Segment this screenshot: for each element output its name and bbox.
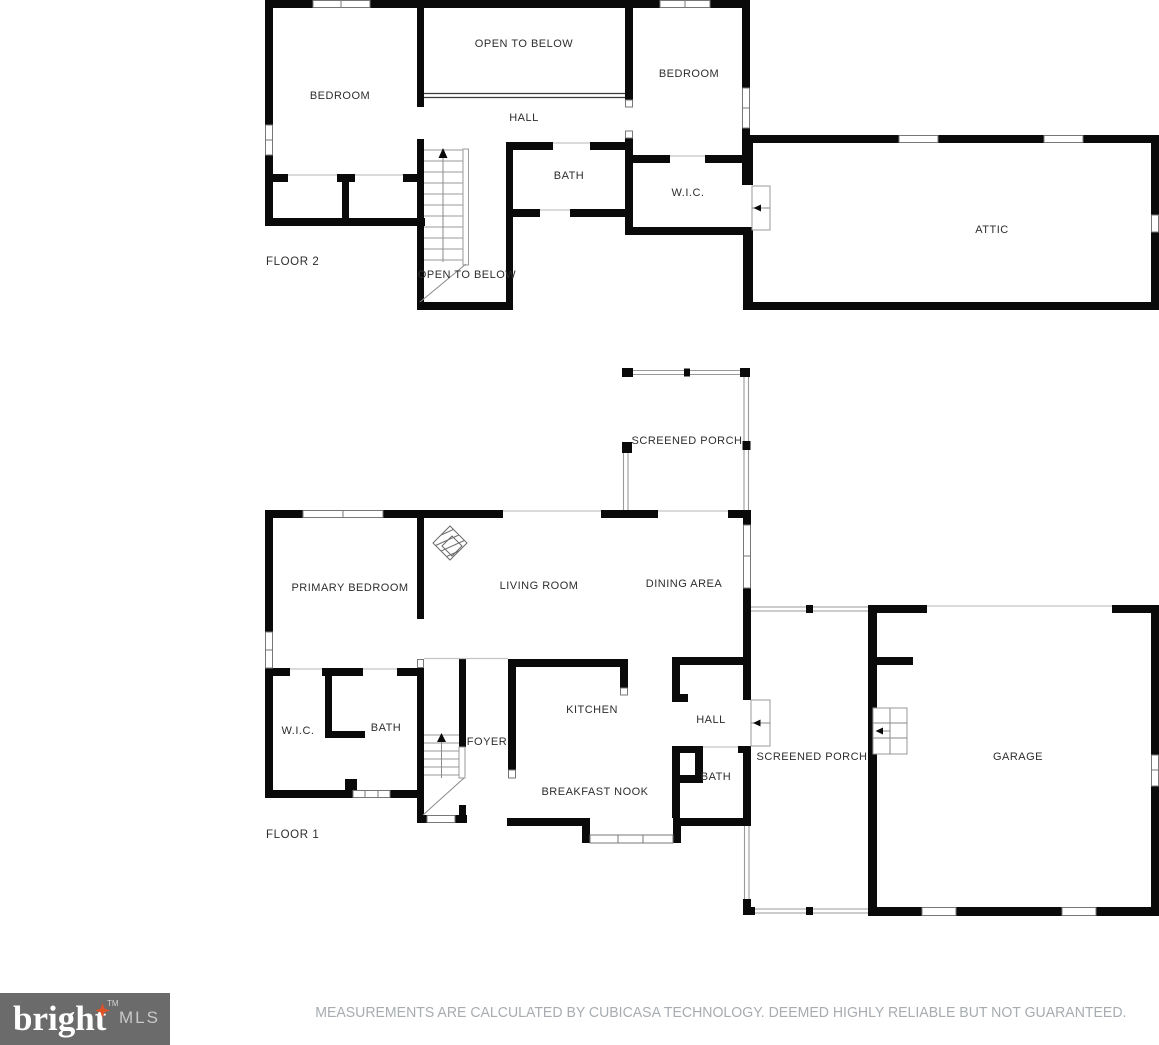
room-label-bath2-f1: BATH: [701, 771, 732, 783]
room-label-garage: GARAGE: [993, 751, 1043, 763]
floor1-garage-step-icon: [873, 708, 907, 754]
room-label-screened-porch-top: SCREENED PORCH: [632, 435, 743, 447]
room-label-attic: ATTIC: [975, 224, 1008, 236]
room-label-kitchen: KITCHEN: [566, 704, 618, 716]
room-label-foyer: FOYER: [467, 736, 507, 748]
floor1-title: FLOOR 1: [266, 829, 319, 841]
room-label-wic-f1: W.I.C.: [282, 725, 315, 737]
room-label-bath-f1: BATH: [371, 722, 402, 734]
stairs-up-arrow-icon: [437, 733, 446, 742]
room-label-hall-f2: HALL: [509, 112, 539, 124]
floor1-labels: SCREENED PORCH PRIMARY BEDROOM LIVING RO…: [266, 435, 1043, 841]
room-label-primary-bedroom: PRIMARY BEDROOM: [291, 582, 408, 594]
room-label-wic-f2: W.I.C.: [672, 187, 705, 199]
floor2-attic-step-icon: [752, 186, 770, 230]
floor1-windows: [266, 511, 1159, 916]
floor-plan-drawing: BEDROOM OPEN TO BELOW BEDROOM HALL BATH …: [0, 0, 1159, 990]
room-label-bedroom-left-f2: BEDROOM: [310, 90, 370, 102]
floor1-stairs-icon: [423, 733, 465, 815]
floor-plan-page: BEDROOM OPEN TO BELOW BEDROOM HALL BATH …: [0, 0, 1159, 1045]
disclaimer-text: MEASUREMENTS ARE CALCULATED BY CUBICASA …: [315, 1004, 1105, 1021]
room-label-living-room: LIVING ROOM: [500, 580, 579, 592]
room-label-breakfast-nook: BREAKFAST NOOK: [541, 786, 648, 798]
brand-logo-bar: bright TM MLS: [0, 993, 170, 1045]
floor1-door-openings: [290, 511, 1112, 778]
room-label-hall-f1: HALL: [696, 714, 726, 726]
room-label-screened-porch-side: SCREENED PORCH: [757, 751, 868, 763]
floor2-walls: [265, 0, 1159, 310]
room-label-dining-area: DINING AREA: [646, 578, 723, 590]
floor1-hall-step-icon: [751, 700, 770, 746]
brand-suffix: MLS: [119, 1008, 160, 1028]
room-label-bath-f2: BATH: [554, 170, 585, 182]
room-label-bedroom-right-f2: BEDROOM: [659, 68, 719, 80]
floor2-open-to-below-railing: [424, 94, 625, 98]
trademark-symbol: TM: [107, 999, 119, 1008]
brand-wordmark: bright: [13, 993, 106, 1045]
floor2-title: FLOOR 2: [266, 256, 319, 268]
room-label-stairs-open-to-below: OPEN TO BELOW: [418, 269, 517, 281]
floor1-walls: [265, 510, 1159, 916]
fireplace-icon: [430, 522, 470, 572]
room-label-open-to-below-f2: OPEN TO BELOW: [475, 38, 574, 50]
floor2-windows: [266, 1, 1159, 233]
